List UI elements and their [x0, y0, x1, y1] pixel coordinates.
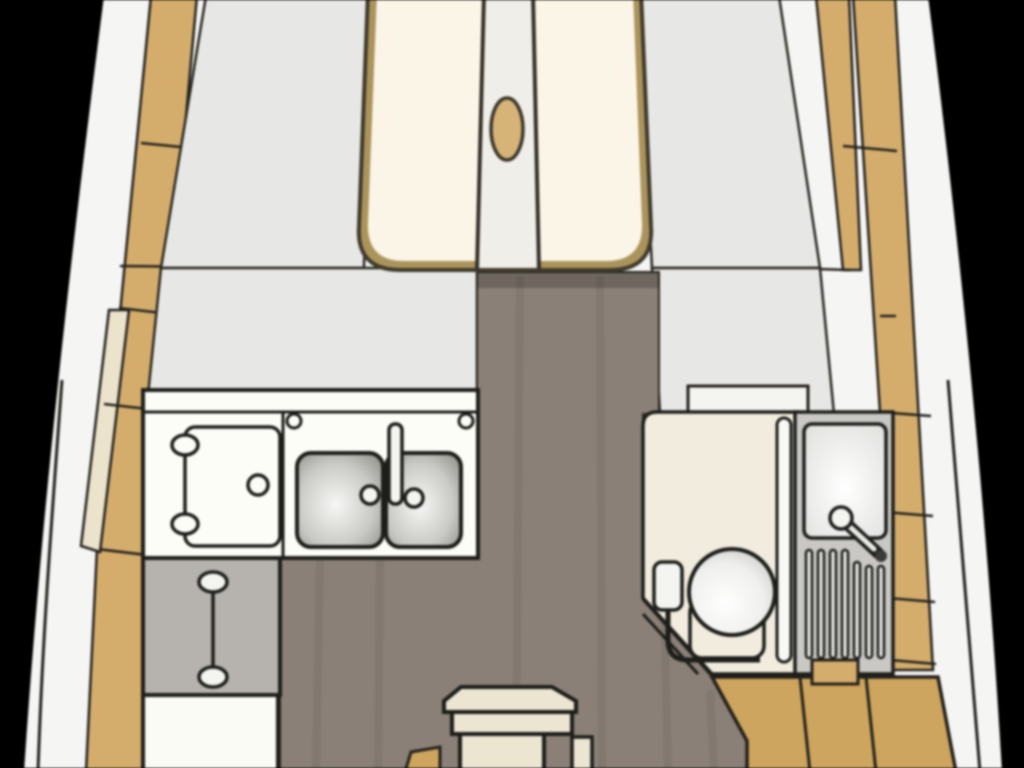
step-side-wing-starboard [572, 737, 592, 768]
companionway-shadow [477, 272, 659, 288]
sink-tap [405, 489, 423, 507]
deck-hatch-oval [491, 98, 523, 160]
cabinet-handle-pin [199, 572, 227, 592]
grate-slat [830, 550, 836, 658]
stove-knob [248, 475, 268, 495]
toilet-pump [654, 562, 682, 610]
grate-slat [866, 566, 872, 658]
washbasin-faucet-base [830, 507, 852, 529]
grate-slat [818, 550, 824, 658]
sink-tap [361, 486, 379, 504]
counter-fitting [287, 414, 301, 428]
companionway-step-bottom [460, 734, 544, 768]
sink-faucet [389, 424, 402, 504]
grate-slat [854, 562, 860, 658]
floor-plan-svg [0, 0, 1024, 768]
saloon-seat-port [148, 268, 477, 395]
washbasin-faucet-tip [875, 550, 887, 562]
aft-locker-block [812, 660, 858, 684]
v-berth [359, 0, 651, 270]
grate-slat [878, 566, 884, 658]
stove-gimbal-mount [172, 435, 198, 455]
starboard-step-line [818, 269, 850, 270]
grate-slat [842, 550, 848, 658]
toilet-bowl [689, 549, 775, 635]
floor-plan-canvas [0, 0, 1024, 768]
aft-sole-teak [712, 677, 956, 768]
cabinet-handle-pin [199, 667, 227, 687]
companionway-step-middle [452, 712, 572, 734]
head-door [777, 418, 791, 662]
port-side-deck-aft [86, 549, 146, 768]
head-top-shelf [688, 386, 808, 412]
head [643, 386, 893, 674]
galley-lower-locker [143, 695, 278, 768]
grate-slat [806, 550, 812, 658]
companionway-step-top [444, 687, 576, 712]
stove-gimbal-mount [172, 514, 198, 534]
counter-fitting [459, 414, 473, 428]
galley [143, 390, 478, 558]
